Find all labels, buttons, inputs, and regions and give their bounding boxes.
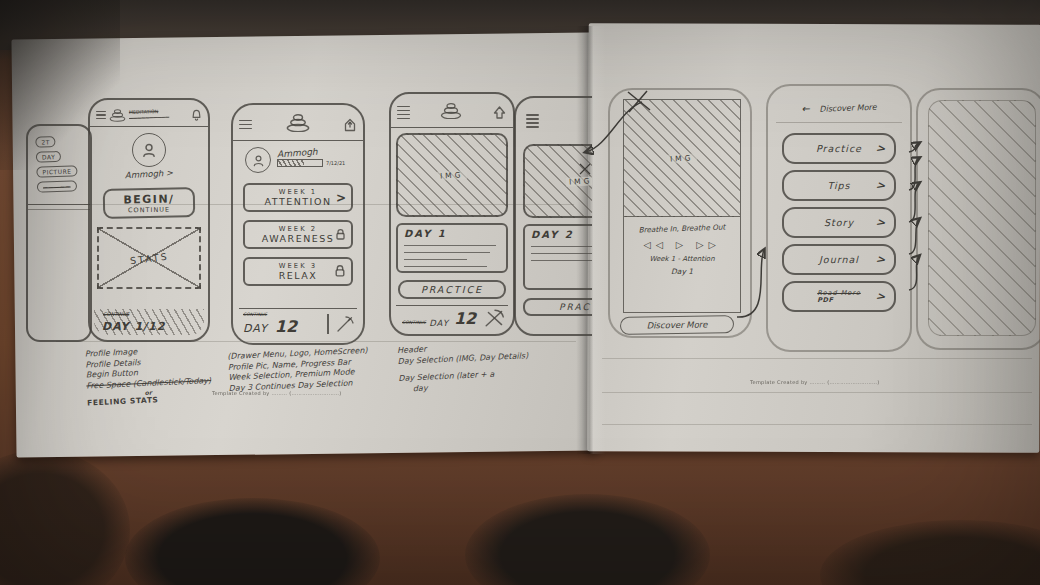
text-line (404, 245, 496, 246)
hamburger-menu-icon (526, 112, 539, 130)
notes-weeks-screen: (Drawer Menu, Logo, HomeScreen) Profile … (227, 344, 409, 394)
week2-awareness-button: WEEK 2 AWARENESS (243, 220, 353, 249)
previous-icon: ◁◁ (643, 239, 668, 250)
text-line (404, 252, 490, 253)
chip-label: DAY (36, 151, 62, 163)
divider (776, 122, 902, 123)
person-icon (252, 154, 265, 167)
stats-placeholder-box: STATS (97, 227, 201, 289)
day-label: Day 1 (624, 267, 740, 276)
sketch-phone-detail-target (916, 88, 1040, 350)
progress-text: 7/12/21 (326, 160, 345, 166)
notes-home-screen: Profile Image Profile Details Begin Butt… (85, 343, 247, 409)
play-icon: ▷ (676, 239, 688, 250)
printed-guide-line (602, 392, 1032, 393)
profile-avatar (245, 147, 271, 173)
discover-more-button: Discover More (620, 315, 734, 335)
day-image-placeholder: IMG (396, 133, 508, 217)
week3-relax-button: WEEK 3 RELAX (243, 257, 353, 286)
person-icon (141, 142, 157, 158)
chevron-right-icon: > (336, 191, 346, 205)
profile-name: Ammogh (277, 145, 346, 160)
sketch-phone-player: IMG Breathe In, Breathe Out ◁◁ ▷ ▷▷ Week… (608, 88, 752, 338)
chevron-right-icon: > (875, 141, 887, 155)
bell-icon (191, 109, 202, 122)
header (233, 105, 363, 141)
notes-days-screen: Header Day Selection (IMG, Day Details) … (397, 338, 579, 395)
discover-button-list: Practice > Tips > Story > Journal > Read… (782, 133, 896, 312)
chevron-right-icon: > (875, 252, 887, 266)
read-more-pdf-button: Read More PDF > (782, 281, 896, 312)
week-label: Week 1 - Attention (624, 255, 740, 263)
day-image-placeholder: IMG (624, 100, 740, 217)
stacked-stones-logo-icon (440, 102, 462, 119)
text-line (404, 259, 467, 260)
lock-icon (334, 262, 346, 281)
divider (28, 204, 90, 210)
chip-label: 2T (35, 136, 56, 148)
stacked-stones-logo-icon (285, 113, 311, 132)
profile-name: Ammogh > (90, 166, 208, 182)
stacked-stones-logo-icon (109, 108, 126, 122)
printed-guide-line (602, 424, 1032, 425)
day1-card: DAY 1 (396, 223, 508, 273)
story-button: Story > (782, 207, 896, 238)
week1-attention-button: WEEK 1 ATTENTION > (243, 183, 353, 212)
template-watermark: Template Created by ……… (………………………) (212, 390, 342, 396)
week-button-list: WEEK 1 ATTENTION > WEEK 2 AWARENESS WEEK… (233, 183, 363, 286)
up-arrow-icon (492, 105, 507, 120)
chevron-right-icon: > (875, 178, 887, 192)
chevron-right-icon: > (875, 289, 887, 303)
discover-header: ← Discover More (768, 100, 910, 116)
printed-guide-line (602, 358, 1032, 359)
text-line (531, 253, 592, 254)
chip-scribble: ~~~~~ (37, 180, 77, 192)
practice-button: PRACTICE (398, 280, 506, 299)
practice-button: Practice > (782, 133, 896, 164)
sketch-phone-discover: ← Discover More Practice > Tips > Story … (766, 84, 912, 352)
pickaxe-icon (484, 308, 506, 328)
text-line (531, 246, 592, 247)
lock-icon (335, 225, 346, 244)
tips-button: Tips > (782, 170, 896, 201)
hamburger-menu-icon (96, 109, 106, 122)
header (391, 94, 513, 128)
day-detail-card: IMG Breathe In, Breathe Out ◁◁ ▷ ▷▷ Week… (623, 99, 741, 313)
day-image-placeholder: IMG (523, 144, 592, 218)
chip-label: PICTURE (36, 165, 77, 177)
screen-placeholder (928, 100, 1036, 336)
sketch-phone-days-next-clipped: IMG DAY 2 PRACTI (514, 96, 592, 336)
hamburger-menu-icon (397, 103, 410, 121)
continue-day-bar: CONTINUE DAY 12 (239, 308, 357, 338)
profile-avatar (132, 133, 166, 167)
share-upload-icon (343, 117, 357, 132)
pickaxe-icon (335, 315, 355, 333)
begin-continue-button: BEGIN/ CONTINUE (103, 187, 196, 219)
player-controls: ◁◁ ▷ ▷▷ (624, 239, 740, 250)
practice-button: PRACTI (523, 298, 592, 316)
day2-card: DAY 2 (523, 224, 592, 290)
continue-day-bar: CONTINUE DAY 12 (396, 305, 508, 330)
next-icon: ▷▷ (696, 239, 721, 250)
sketch-phone-edge: 2T DAY PICTURE ~~~~~ (26, 124, 92, 342)
sketch-phone-days: IMG DAY 1 PRACTICE CONTINUE DAY 12 (389, 92, 515, 336)
divider (327, 314, 329, 334)
header: MEDITATION ~~~~~~~~~~ (90, 100, 208, 127)
app-title-scribble: MEDITATION ~~~~~~~~~~ (129, 108, 188, 122)
progress-bar (277, 159, 323, 167)
template-watermark: Template Created by ……… (………………………) (750, 379, 880, 385)
chevron-right-icon: > (875, 215, 887, 229)
text-line (531, 260, 592, 261)
hamburger-menu-icon (239, 117, 252, 131)
sketch-phone-weeks: Ammogh 7/12/21 WEEK 1 ATTENTION > WEEK 2… (231, 103, 365, 345)
sketch-phone-home: MEDITATION ~~~~~~~~~~ Ammogh > BEGIN/ CO… (88, 98, 210, 342)
journal-button: Journal > (782, 244, 896, 275)
back-arrow-icon: ← (801, 103, 810, 114)
text-line (404, 266, 487, 267)
profile-row: Ammogh 7/12/21 (233, 141, 363, 173)
continue-day-bar: CONTINUE DAY 1/12 (94, 309, 204, 335)
track-title: Breathe In, Breathe Out (624, 222, 740, 235)
